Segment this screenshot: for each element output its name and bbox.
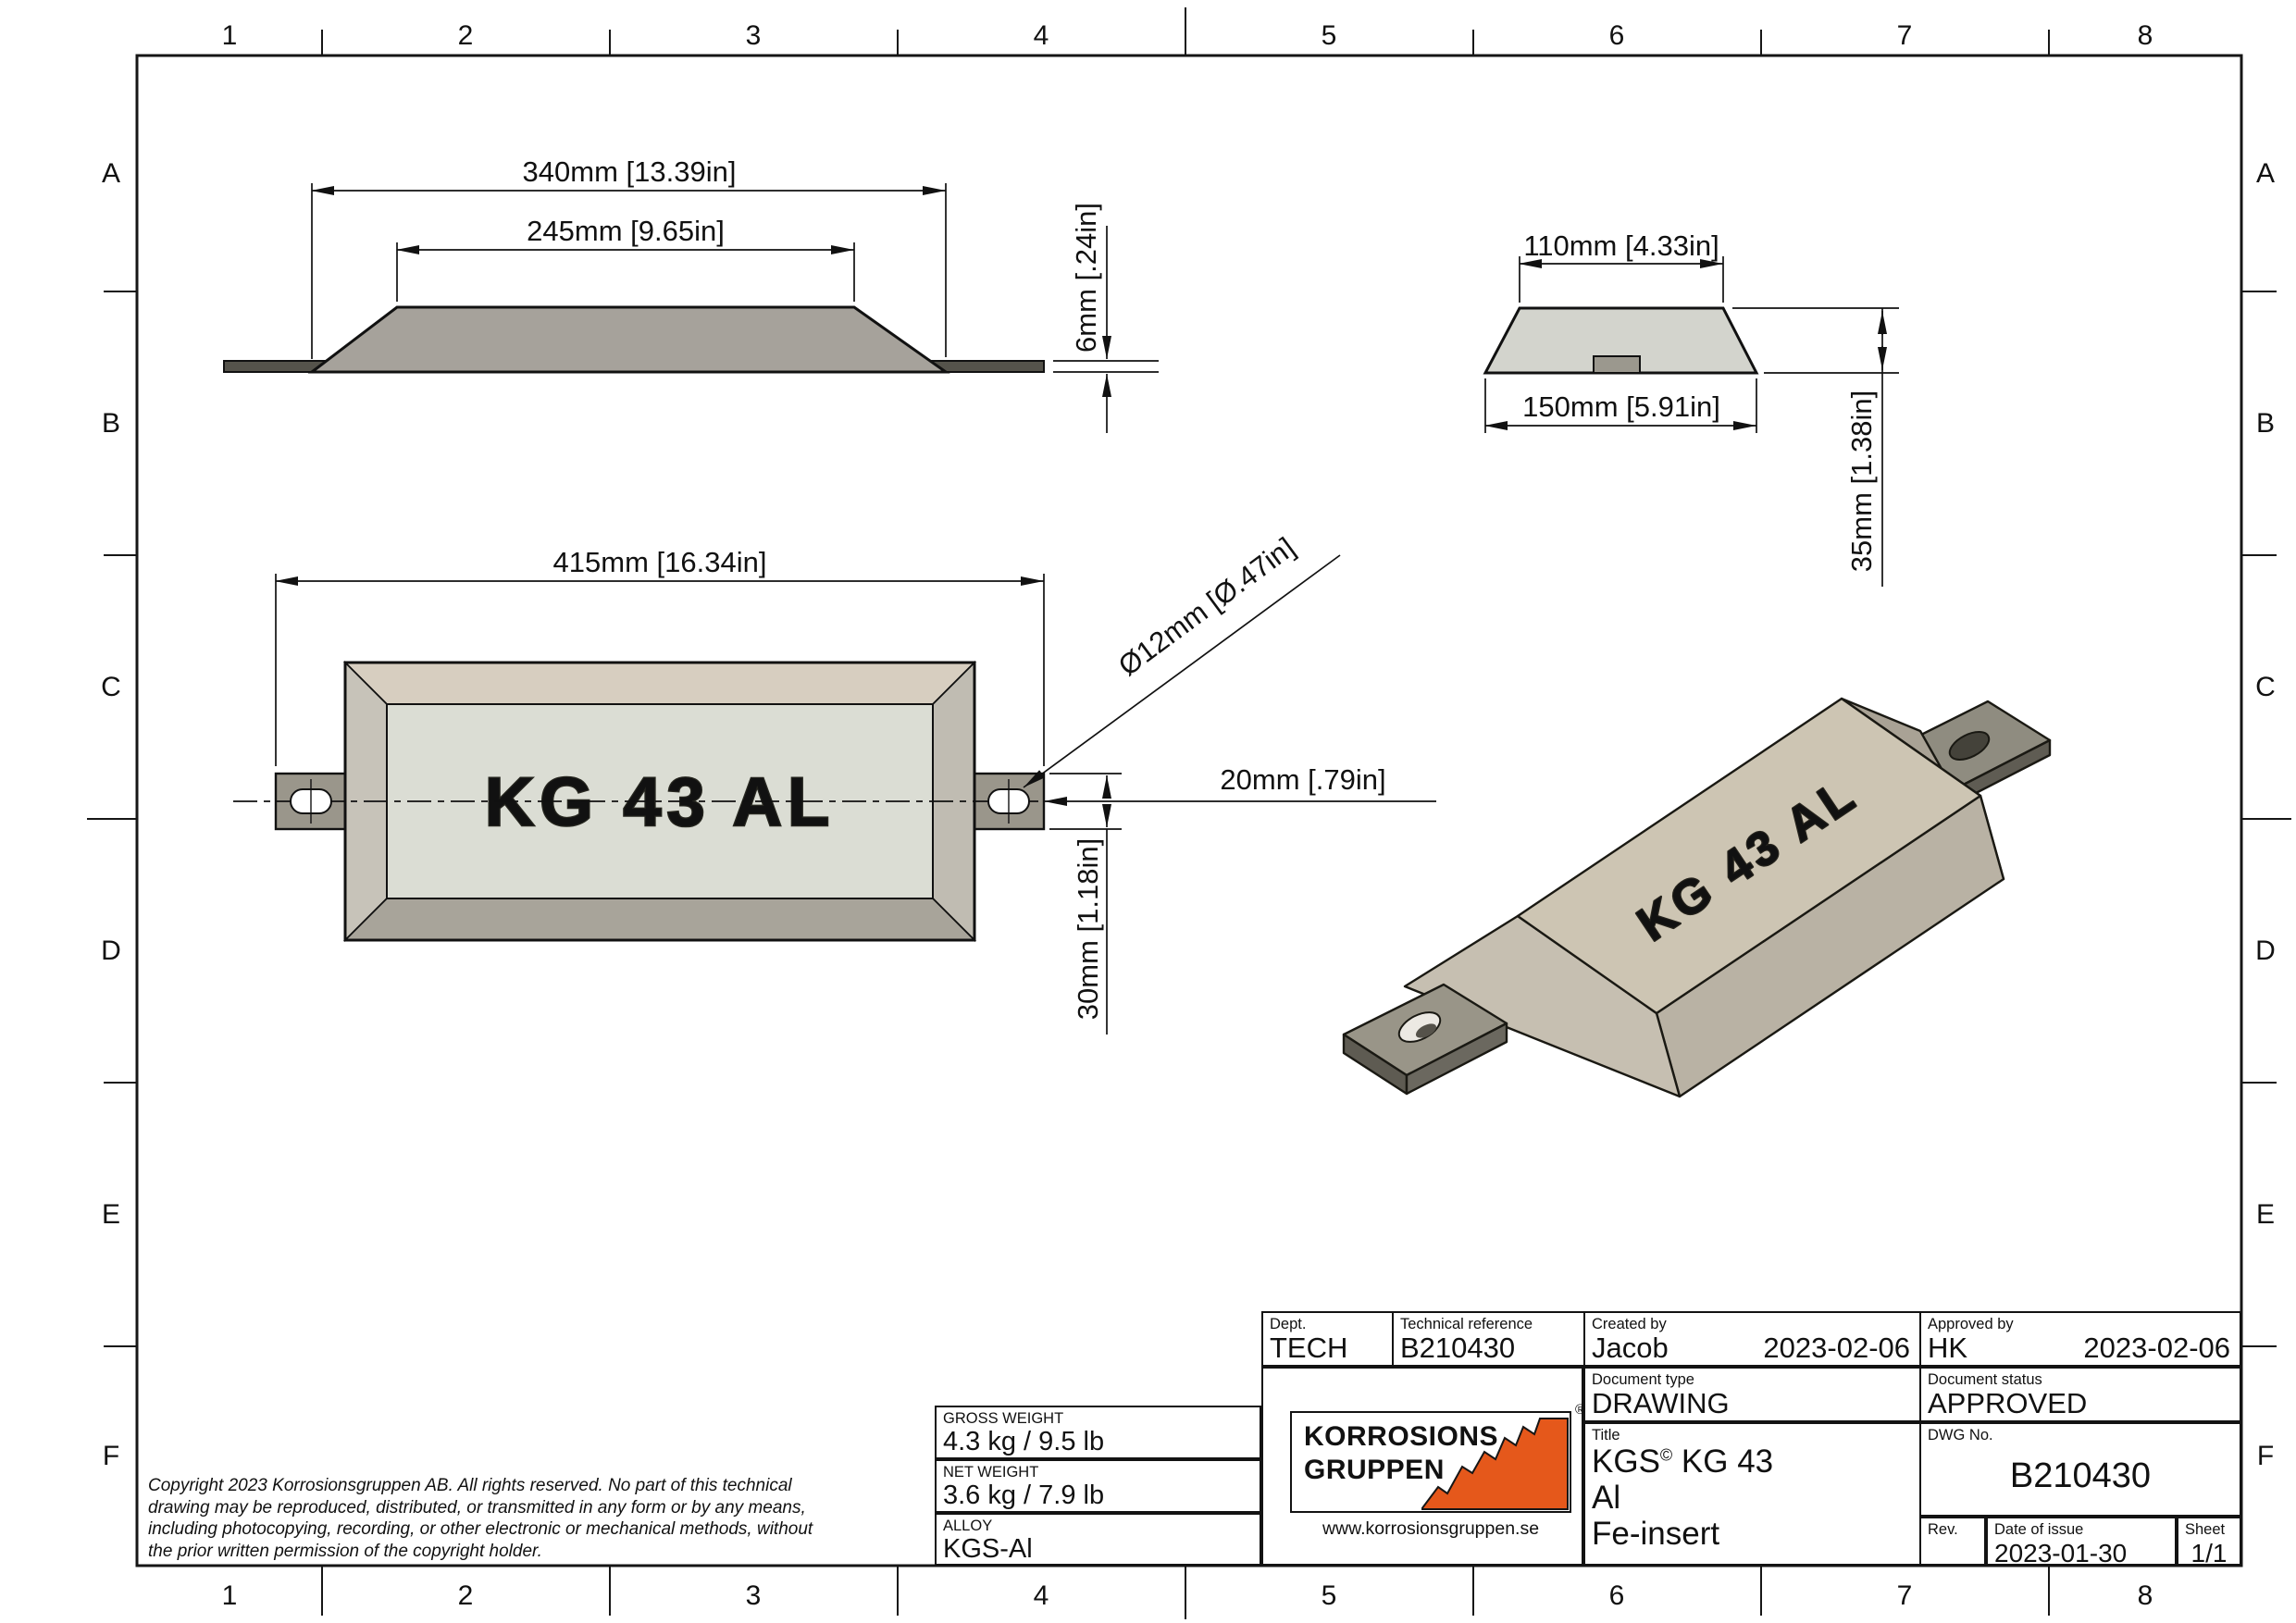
col-label: 5 [1322,20,1337,51]
net-weight-value: 3.6 kg / 7.9 lb [937,1481,1260,1510]
gross-weight-cell: GROSS WEIGHT 4.3 kg / 9.5 lb [935,1406,1261,1459]
dim-340: 340mm [13.39in] [523,155,737,188]
logo-line1: KORROSIONS [1292,1413,1570,1454]
dept-cell: Dept. TECH [1261,1311,1394,1367]
col-label: 7 [1897,1580,1913,1611]
row-label: B [102,408,120,439]
logo-line2: GRUPPEN [1292,1454,1570,1487]
col-label: 2 [458,1580,474,1611]
date-of-issue-value: 2023-01-30 [1988,1538,2175,1567]
col-label: 1 [222,20,238,51]
sheet-value: 1/1 [2178,1538,2240,1567]
row-label: F [103,1441,119,1471]
row-label: E [102,1199,120,1230]
alloy-cell: ALLOY KGS-Al [935,1513,1261,1566]
col-label: 3 [746,20,762,51]
dwg-no-cell: DWG No. B210430 [1919,1422,2241,1517]
title-line2: Al [1585,1480,1919,1516]
row-label: A [2256,158,2275,189]
col-label: 2 [458,20,474,51]
row-label: F [2257,1441,2274,1471]
approved-by-value: HK [1928,1333,1967,1362]
row-label: C [2255,672,2276,702]
gross-weight-label: GROSS WEIGHT [937,1407,1260,1427]
col-label: 6 [1609,20,1625,51]
sheet-cell: Sheet 1/1 [2177,1517,2241,1566]
row-label: A [102,158,120,189]
korrosionsgruppen-logo: KORROSIONS GRUPPEN [1290,1411,1571,1513]
dwg-no-value: B210430 [1921,1456,2240,1496]
plan-view: KG 43 AL 415mm [16.34in] 20mm [.79in] 30… [233,531,1436,1035]
approved-by-cell: Approved by HK 2023-02-06 [1919,1311,2241,1367]
doc-type-cell: Document type DRAWING [1583,1367,1921,1422]
isometric-view: KG 43 AL [1344,699,2050,1096]
row-label: E [2256,1199,2275,1230]
col-label: 4 [1034,1580,1049,1611]
created-by-value: Jacob [1592,1333,1669,1362]
dim-35: 35mm [1.38in] [1845,390,1878,572]
copyright-line: the prior written permission of the copy… [148,1541,813,1563]
copyright-line: Copyright 2023 Korrosionsgruppen AB. All… [148,1475,813,1497]
gross-weight-value: 4.3 kg / 9.5 lb [937,1427,1260,1456]
tech-ref-cell: Technical reference B210430 [1392,1311,1585,1367]
end-view: 110mm [4.33in] 150mm [5.91in] 35mm [1.38… [1485,229,1899,587]
date-of-issue-cell: Date of issue 2023-01-30 [1986,1517,2177,1566]
dim-hole: Ø12mm [Ø.47in] [1112,531,1301,682]
dim-30: 30mm [1.18in] [1072,838,1104,1020]
created-by-label: Created by [1585,1313,1919,1332]
copyright-symbol: © [1660,1445,1672,1464]
dim-6: 6mm [.24in] [1070,203,1102,353]
row-label: C [101,672,121,702]
approved-date-value: 2023-02-06 [2083,1333,2230,1362]
created-date-value: 2023-02-06 [1763,1333,1910,1362]
dim-245: 245mm [9.65in] [527,215,725,247]
dim-415: 415mm [16.34in] [553,546,767,578]
col-label: 8 [2138,1580,2153,1611]
bevel-bottom [345,898,974,940]
logo-url: www.korrosionsgruppen.se [1263,1518,1598,1540]
approved-by-label: Approved by [1921,1313,2240,1332]
title-label: Title [1585,1424,1919,1443]
rev-label: Rev. [1921,1518,1984,1538]
anode-body-side [312,307,946,372]
tech-ref-value: B210430 [1394,1332,1583,1362]
dim-110: 110mm [4.33in] [1523,229,1719,262]
sheet-label: Sheet [2178,1518,2240,1538]
dim-20: 20mm [.79in] [1220,763,1385,796]
dept-label: Dept. [1263,1313,1392,1332]
col-label: 6 [1609,1580,1625,1611]
copyright-line: drawing may be reproduced, distributed, … [148,1497,813,1519]
row-label: B [2256,408,2275,439]
row-label: D [2255,935,2276,966]
drawing-sheet: 1 2 3 4 5 6 7 8 1 2 3 4 5 6 7 8 A B C D … [0,0,2296,1623]
col-label: 1 [222,1580,238,1611]
row-label: D [101,935,121,966]
date-of-issue-label: Date of issue [1988,1518,2175,1538]
copyright-note: Copyright 2023 Korrosionsgruppen AB. All… [148,1475,813,1562]
doc-type-label: Document type [1585,1369,1919,1388]
alloy-value: KGS-Al [937,1534,1260,1564]
doc-status-cell: Document status APPROVED [1919,1367,2241,1422]
dept-value: TECH [1263,1332,1392,1362]
doc-type-value: DRAWING [1585,1388,1919,1418]
dwg-no-label: DWG No. [1921,1424,2240,1443]
doc-status-value: APPROVED [1921,1388,2240,1418]
col-label: 4 [1034,20,1049,51]
doc-status-label: Document status [1921,1369,2240,1388]
col-label: 3 [746,1580,762,1611]
copyright-line: including photocopying, recording, or ot… [148,1518,813,1541]
tech-ref-label: Technical reference [1394,1313,1583,1332]
title-cell: Title KGS© KG 43 Al Fe-insert [1583,1422,1921,1566]
bevel-top [345,663,974,704]
created-by-cell: Created by Jacob 2023-02-06 [1583,1311,1921,1367]
dim-150: 150mm [5.91in] [1522,390,1720,423]
registered-mark: ® [1575,1402,1585,1418]
col-label: 7 [1897,20,1913,51]
title-line1: KGS© KG 43 [1585,1443,1919,1480]
side-view: 340mm [13.39in] 245mm [9.65in] 6mm [.24i… [224,155,1159,433]
col-label: 8 [2138,20,2153,51]
rev-cell: Rev. [1919,1517,1986,1566]
net-weight-label: NET WEIGHT [937,1461,1260,1481]
net-weight-cell: NET WEIGHT 3.6 kg / 7.9 lb [935,1459,1261,1513]
alloy-label: ALLOY [937,1515,1260,1534]
fe-insert-notch [1594,356,1640,373]
logo-cell: KORROSIONS GRUPPEN ® www.korrosionsgrupp… [1261,1367,1583,1566]
col-label: 5 [1322,1580,1337,1611]
title-line3: Fe-insert [1585,1516,1919,1552]
